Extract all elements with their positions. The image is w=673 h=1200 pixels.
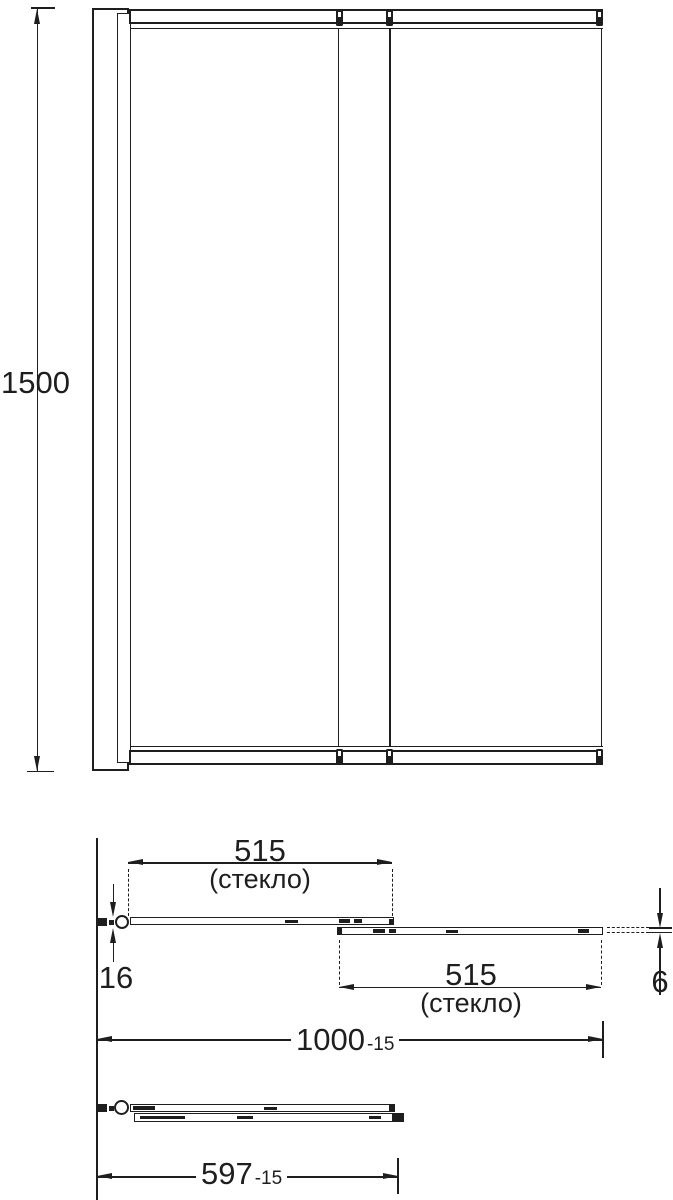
- dim-1000-tolerance: -15: [367, 1035, 394, 1054]
- drawing-canvas: 1500 515 (стекло) 16: [0, 0, 673, 1200]
- plan-closed-panel2-fitting2: [237, 1116, 253, 1119]
- plan-closed-panel2-fitting1: [140, 1116, 185, 1119]
- dim-16-arrow-down-icon: [110, 902, 116, 917]
- dim-6-arrow-down-icon: [657, 913, 663, 928]
- plan-open-panel1-fitting3: [354, 919, 362, 923]
- plan-open-panel2-endcap-left: [338, 928, 342, 934]
- dim-1000-arrow-right-icon: [588, 1036, 603, 1042]
- dim-1000-arrow-left-icon: [97, 1036, 112, 1042]
- dim-16-label: 16: [94, 962, 138, 993]
- dim-1000-value: 1000: [296, 1024, 365, 1055]
- dim-6-line-upper: [659, 888, 660, 915]
- dim-6-dash-bottom: [607, 932, 649, 933]
- plan-wall-line: [96, 838, 98, 1200]
- plan-closed-panel1-fitting1: [133, 1106, 155, 1109]
- dim-515a-label: 515: [200, 835, 320, 866]
- roller-clamp-top-right-icon: [596, 10, 603, 26]
- sliding-panel-right-edge: [601, 29, 603, 746]
- dim-515a-arrow-left-icon: [128, 859, 143, 865]
- dim-515a-ext-left: [128, 869, 129, 916]
- plan-open-panel2-fitting2: [389, 929, 396, 933]
- wall-bracket-open-block2: [109, 920, 114, 926]
- dim-1500-arrow-down-icon: [34, 756, 40, 771]
- plan-open-panel2-fitting4: [578, 929, 589, 933]
- plan-open-panel2-fitting1: [373, 929, 385, 933]
- plan-open-panel1-fitting2: [339, 919, 350, 923]
- roller-clamp-bottom-right-icon: [596, 749, 603, 765]
- wall-bracket-closed-knuckle-icon: [114, 1100, 129, 1115]
- dim-515b-ext-left: [339, 940, 340, 985]
- plan-open-panel1-endcap: [389, 919, 394, 925]
- top-rail-lower-line: [131, 28, 603, 29]
- plan-closed-panel1-endcap: [389, 1105, 394, 1111]
- dim-597-arrow-right-icon: [383, 1173, 398, 1179]
- dim-16-line-upper: [113, 884, 114, 904]
- bottom-rail: [129, 750, 603, 765]
- roller-clamp-bottom-left-icon: [336, 749, 343, 765]
- dim-16-line-lower: [113, 941, 114, 962]
- plan-open-panel2-fitting3: [446, 930, 458, 933]
- dim-515a-ext-right: [392, 869, 393, 916]
- dim-515a-arrow-right-icon: [377, 859, 392, 865]
- top-rail: [129, 9, 603, 24]
- roller-clamp-top-left-icon: [336, 10, 343, 26]
- fixed-panel-right-edge: [338, 29, 339, 746]
- wall-bracket-open-knuckle-icon: [115, 915, 129, 929]
- roller-clamp-bottom-middle-icon: [386, 749, 393, 765]
- dim-6-label: 6: [645, 966, 673, 997]
- dim-597-value: 597: [201, 1158, 253, 1189]
- dim-1500-arrow-up-icon: [34, 9, 40, 24]
- plan-open-panel1-fitting1: [285, 920, 298, 923]
- dim-6-dash-top: [607, 927, 649, 928]
- plan-closed-panel1: [130, 1104, 395, 1113]
- dim-515b-arrow-left-icon: [339, 984, 354, 990]
- bottom-rail-upper-line: [131, 746, 603, 747]
- dim-515b-note: (стекло): [396, 990, 546, 1017]
- plan-closed-panel2-fitting3: [369, 1116, 381, 1119]
- dim-515b-ext-right: [601, 940, 602, 985]
- dim-597-arrow-left-icon: [97, 1173, 112, 1179]
- dim-1500-label: 1500: [1, 367, 67, 398]
- roller-clamp-top-middle-icon: [386, 10, 393, 26]
- dim-515a-note: (стекло): [185, 866, 335, 893]
- dim-515b-label: 515: [411, 959, 531, 990]
- wall-bracket-closed-block1: [97, 1104, 107, 1112]
- wall-profile-inner: [117, 13, 131, 763]
- sliding-panel-left-edge: [389, 29, 391, 746]
- plan-closed-panel1-fitting2: [264, 1107, 277, 1110]
- dim-515b-arrow-right-icon: [586, 984, 601, 990]
- dim-1000-label: 1000-15: [291, 1024, 399, 1055]
- dim-597-label: 597-15: [196, 1158, 287, 1189]
- dim-1500-bottom-tick: [27, 771, 54, 773]
- wall-bracket-open-block1: [97, 918, 107, 926]
- plan-closed-panel2-endcap: [392, 1114, 403, 1121]
- dim-597-tolerance: -15: [255, 1169, 282, 1188]
